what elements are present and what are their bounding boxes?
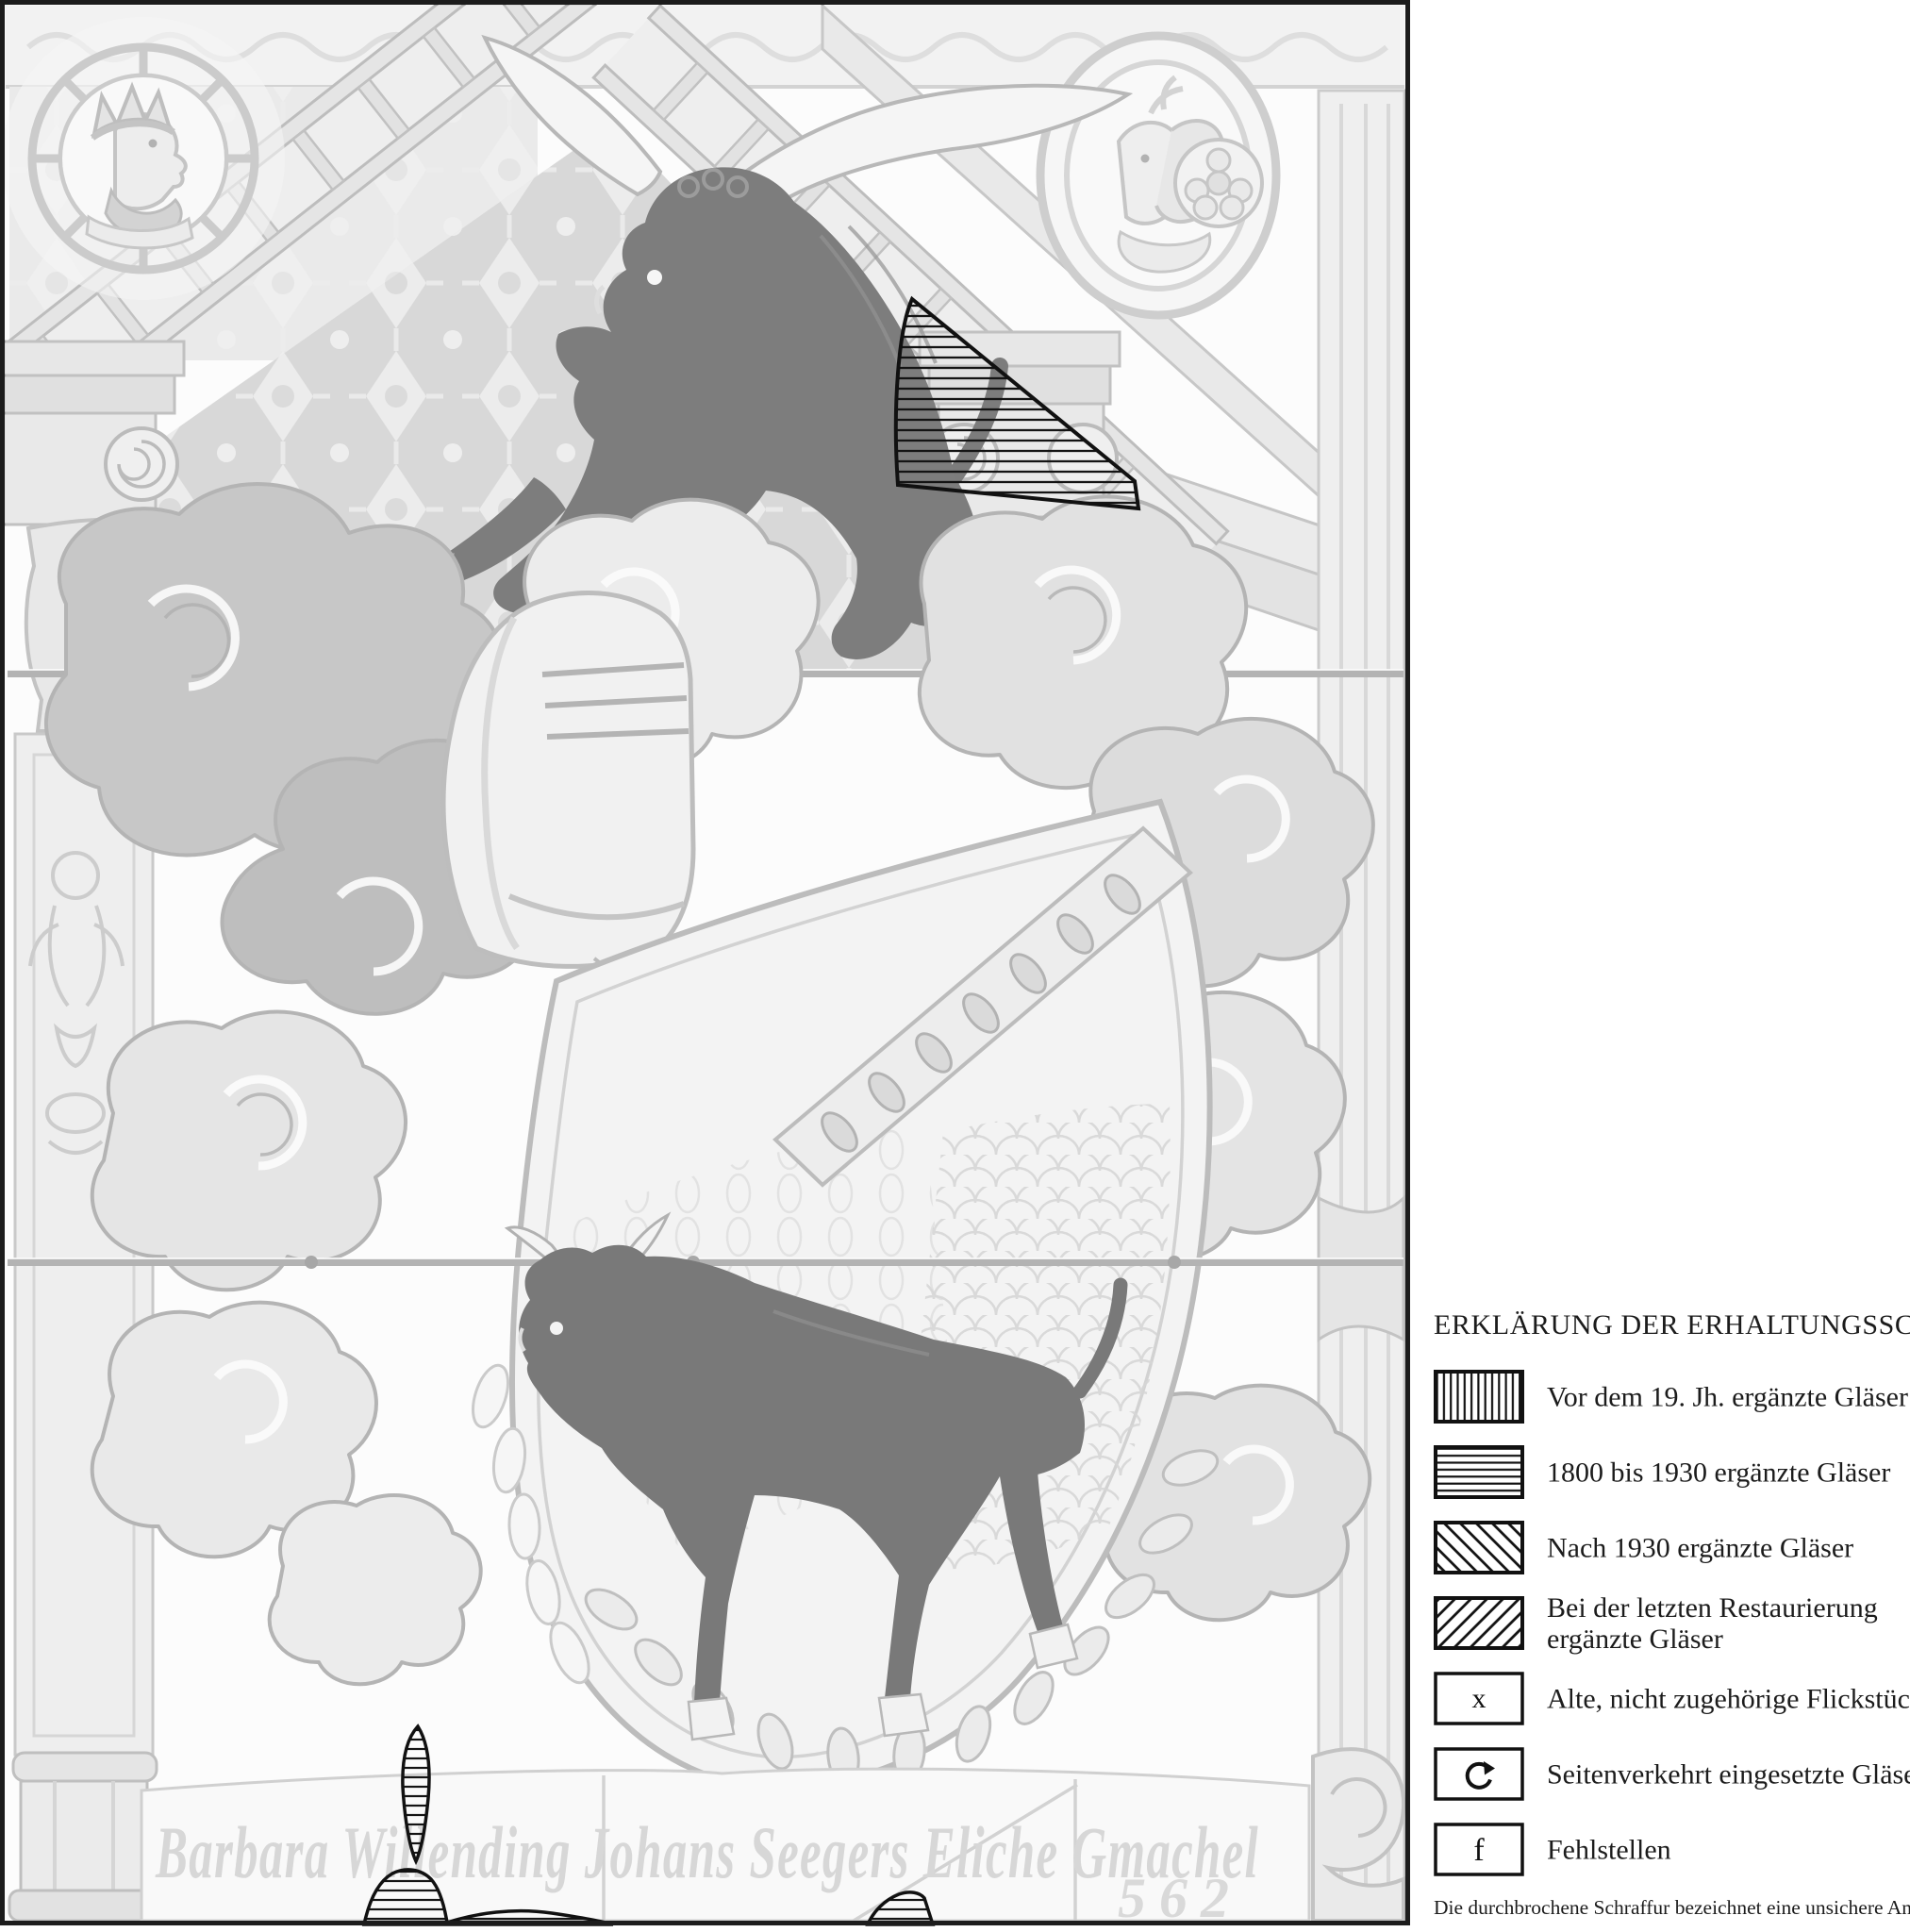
swatch-letter-x: x bbox=[1434, 1672, 1524, 1725]
legend-row-losses: f Fehlstellen bbox=[1434, 1823, 1905, 1876]
swatch-diagonal-hatch-backward bbox=[1434, 1521, 1524, 1574]
legend-row-last-restoration: Bei der letzten Restaurierung ergänzte G… bbox=[1434, 1596, 1905, 1650]
legend-title: ERKLÄRUNG DER ERHALTUNGSSCHEMATA bbox=[1434, 1309, 1910, 1341]
legend-label: Bei der letzten Restaurierung ergänzte G… bbox=[1547, 1592, 1878, 1655]
swatch-diagonal-hatch-forward bbox=[1434, 1596, 1524, 1650]
f-symbol: f bbox=[1473, 1833, 1485, 1868]
glass-panel-artwork: Barbara Willending Johans Seegers Eliche… bbox=[0, 0, 1409, 1926]
legend-label-line2: ergänzte Gläser bbox=[1547, 1624, 1878, 1655]
swatch-horizontal-hatch bbox=[1434, 1445, 1524, 1499]
legend-footnote: Die durchbrochene Schraffur bezeichnet e… bbox=[1434, 1896, 1910, 1920]
legend-row-reversed-glasses: Seitenverkehrt eingesetzte Gläser bbox=[1434, 1747, 1905, 1801]
legend-label-line1: Bei der letzten Restaurierung bbox=[1547, 1592, 1878, 1624]
plate-page: Barbara Willending Johans Seegers Eliche… bbox=[0, 0, 1910, 1932]
legend-row-pre-19th-century: Vor dem 19. Jh. ergänzte Gläser bbox=[1434, 1370, 1905, 1424]
legend-label: Nach 1930 ergänzte Gläser bbox=[1547, 1532, 1853, 1563]
rotate-clockwise-arrow-icon bbox=[1468, 1761, 1495, 1788]
swatch-letter-f: f bbox=[1434, 1823, 1524, 1876]
swatch-vertical-hatch bbox=[1434, 1370, 1524, 1424]
fade-wash bbox=[6, 6, 1404, 1921]
legend-row-old-foreign-patches: x Alte, nicht zugehörige Flickstücke bbox=[1434, 1672, 1905, 1725]
legend-label: 1800 bis 1930 ergänzte Gläser bbox=[1547, 1457, 1890, 1488]
legend-row-1800-1930: 1800 bis 1930 ergänzte Gläser bbox=[1434, 1445, 1905, 1499]
legend-label: Vor dem 19. Jh. ergänzte Gläser bbox=[1547, 1381, 1908, 1412]
swatch-rotate-icon bbox=[1434, 1747, 1524, 1801]
legend-label: Alte, nicht zugehörige Flickstücke bbox=[1547, 1683, 1910, 1714]
legend-label: Seitenverkehrt eingesetzte Gläser bbox=[1547, 1758, 1910, 1790]
legend-row-after-1930: Nach 1930 ergänzte Gläser bbox=[1434, 1521, 1905, 1574]
x-symbol: x bbox=[1472, 1683, 1486, 1714]
panel-photograph: Barbara Willending Johans Seegers Eliche… bbox=[0, 0, 1410, 1926]
legend-label: Fehlstellen bbox=[1547, 1834, 1671, 1865]
